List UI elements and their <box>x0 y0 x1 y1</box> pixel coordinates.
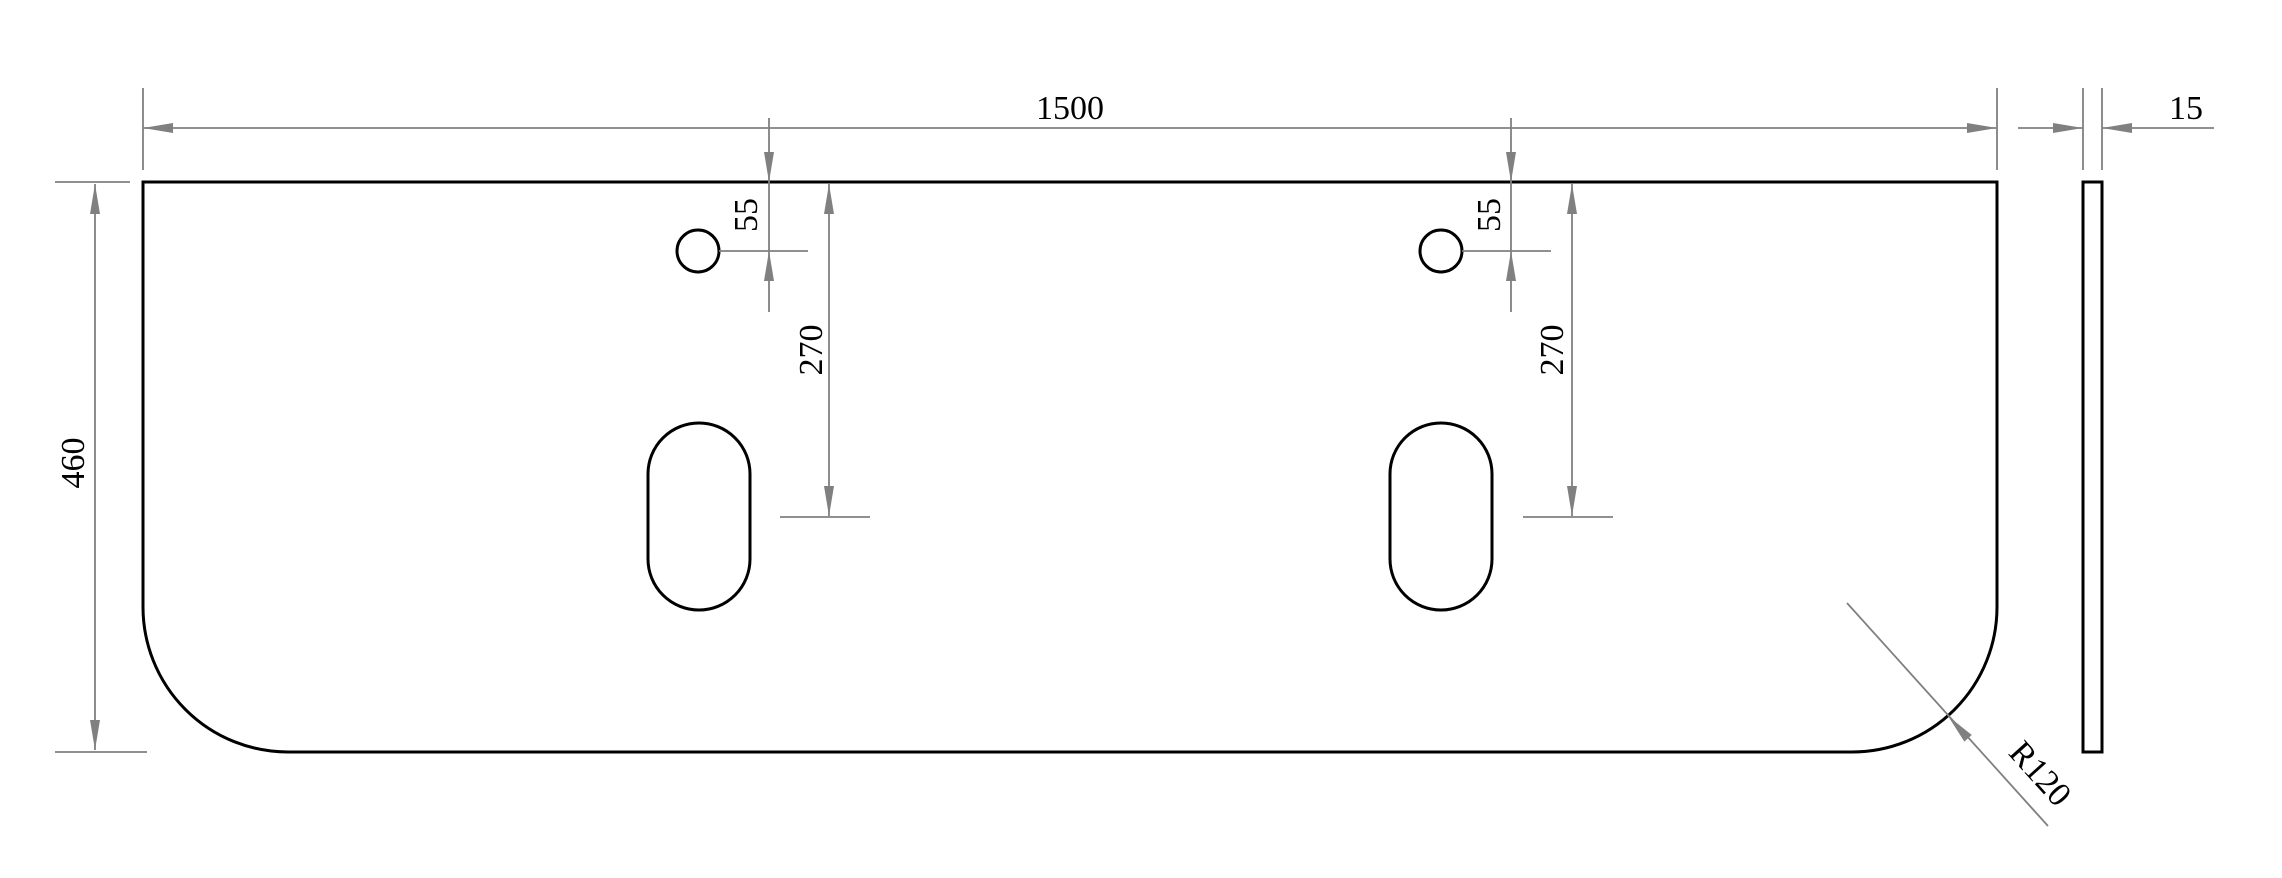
side-profile-outline <box>2083 182 2102 752</box>
dim-270R-label: 270 <box>1534 325 1571 376</box>
dim-460-label: 460 <box>55 438 92 489</box>
drawing-background <box>0 0 2282 878</box>
side-view <box>2083 182 2102 752</box>
technical-drawing-canvas: 1500 460 55 270 55 270 <box>0 0 2282 878</box>
dim-55L-label: 55 <box>728 198 765 232</box>
dim-1500-label: 1500 <box>1036 90 1104 127</box>
dim-15-label: 15 <box>2169 90 2203 127</box>
dim-55R-label: 55 <box>1471 198 1508 232</box>
countertop-drawing-svg: 1500 460 55 270 55 270 <box>0 0 2282 878</box>
dim-270L-label: 270 <box>793 325 830 376</box>
